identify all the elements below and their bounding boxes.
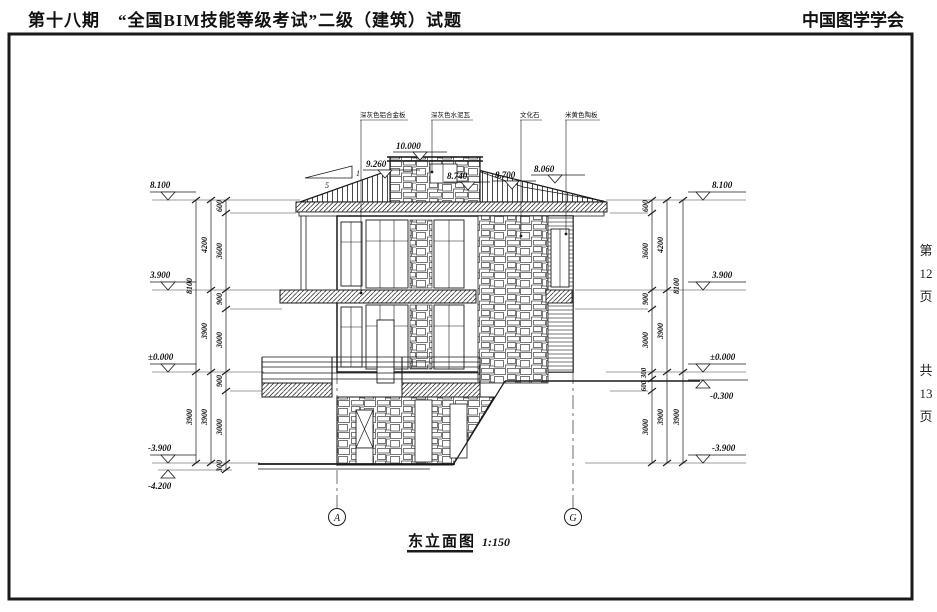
grid-letter-g: G bbox=[569, 513, 576, 524]
dim-right-outer: 3900 bbox=[672, 409, 681, 426]
dim-right-middle: 3900 bbox=[656, 409, 665, 426]
level-marker-minus3900-right: -3.900 bbox=[712, 443, 736, 453]
dim-left-outer: 8100 bbox=[185, 278, 194, 294]
tall-window bbox=[377, 320, 394, 383]
grid-letter-a: A bbox=[333, 513, 341, 524]
level-marker-8740: 8.740 bbox=[447, 171, 468, 181]
level-marker-minus3900-left: -3.900 bbox=[148, 443, 172, 453]
grid-bubbles: A G bbox=[329, 509, 582, 526]
dim-right-inner: 3600 bbox=[641, 243, 650, 260]
material-label-culture-stone: 文化石 bbox=[520, 110, 540, 119]
dim-left-inner: 600 bbox=[215, 200, 224, 212]
dim-left-inner: 300 bbox=[215, 460, 224, 473]
balcony-slab-right bbox=[402, 383, 480, 397]
level-marker-minus0300-right: -0.300 bbox=[710, 391, 734, 401]
window bbox=[341, 222, 362, 286]
dim-left-middle: 3900 bbox=[200, 323, 209, 340]
level-marker-0000-left: ±0.000 bbox=[148, 352, 174, 362]
level-marker-8100-right: 8.100 bbox=[712, 180, 733, 190]
window bbox=[366, 220, 408, 288]
level-marker-minus4200-left: -4.200 bbox=[148, 481, 172, 491]
material-label-aluminum: 深灰色铝合金板 bbox=[360, 110, 406, 119]
building bbox=[258, 157, 700, 469]
dim-left-outer: 3900 bbox=[185, 409, 194, 426]
floor-band-3900 bbox=[280, 290, 476, 303]
stone-pier bbox=[410, 305, 432, 369]
balcony-slab-left bbox=[262, 383, 332, 397]
dim-right-inner: 900 bbox=[641, 293, 650, 305]
dim-right-middle: 4200 bbox=[656, 237, 665, 254]
dim-right-inner: 600 bbox=[641, 200, 650, 212]
dim-left-middle: 4200 bbox=[200, 237, 209, 254]
slope-run: 5 bbox=[325, 181, 329, 190]
basement-window bbox=[450, 404, 467, 458]
porch-column bbox=[301, 216, 306, 290]
stone-pier bbox=[410, 220, 432, 288]
stone-cladding bbox=[478, 216, 548, 383]
window bbox=[341, 307, 362, 367]
title-underline bbox=[407, 550, 473, 553]
dim-left-middle: 3900 bbox=[200, 409, 209, 426]
right-level-markers: 8.100 3.900 ±0.000 -0.300 -3.900 bbox=[688, 180, 748, 463]
level-marker-9260: 9.260 bbox=[366, 159, 387, 169]
dim-right-inner: 3000 bbox=[641, 419, 650, 436]
basement-window bbox=[415, 400, 432, 462]
eave-band bbox=[296, 202, 607, 212]
exam-sheet-page: 第十八期 “全国BIM技能等级考试”二级（建筑）试题 中国图学学会 第 12 页… bbox=[0, 0, 937, 612]
material-label-cement-tile: 深灰色水泥瓦 bbox=[431, 110, 471, 119]
dim-right-outer: 8100 bbox=[672, 278, 681, 294]
level-marker-8700: 8.700 bbox=[495, 170, 516, 180]
level-marker-3900-right: 3.900 bbox=[711, 270, 733, 280]
slope-rise: 1 bbox=[356, 169, 360, 178]
elevation-drawing: A G bbox=[0, 0, 937, 612]
dim-right-inner: 300 bbox=[640, 367, 648, 379]
drawing-title: 东立面图 bbox=[408, 532, 476, 550]
dim-left-inner: 900 bbox=[215, 293, 224, 305]
dim-left-inner: 3000 bbox=[215, 419, 224, 436]
material-label-ceramic-panel: 米黄色陶板 bbox=[565, 110, 598, 119]
dim-right-middle: 3900 bbox=[656, 323, 665, 340]
drawing-scale: 1:150 bbox=[482, 535, 510, 549]
level-marker-10000: 10.000 bbox=[396, 141, 421, 151]
level-marker-8060: 8.060 bbox=[534, 164, 555, 174]
level-marker-8100-left: 8.100 bbox=[150, 180, 171, 190]
drawing-title-block: 东立面图 1:150 bbox=[407, 532, 510, 553]
dim-left-inner: 900 bbox=[215, 375, 224, 387]
level-marker-3900-left: 3.900 bbox=[149, 270, 171, 280]
level-marker-0000-right: ±0.000 bbox=[710, 352, 736, 362]
floor-band-3900-right bbox=[546, 290, 572, 303]
dim-right-inner: 600 bbox=[640, 380, 648, 391]
left-level-markers: 8.100 3.900 ±0.000 -3.900 -4.200 bbox=[148, 180, 196, 491]
dim-left-inner: 3600 bbox=[215, 243, 224, 260]
dim-right-inner: 3000 bbox=[641, 332, 650, 349]
basement-door bbox=[356, 448, 373, 464]
dim-left-inner: 3000 bbox=[215, 332, 224, 349]
